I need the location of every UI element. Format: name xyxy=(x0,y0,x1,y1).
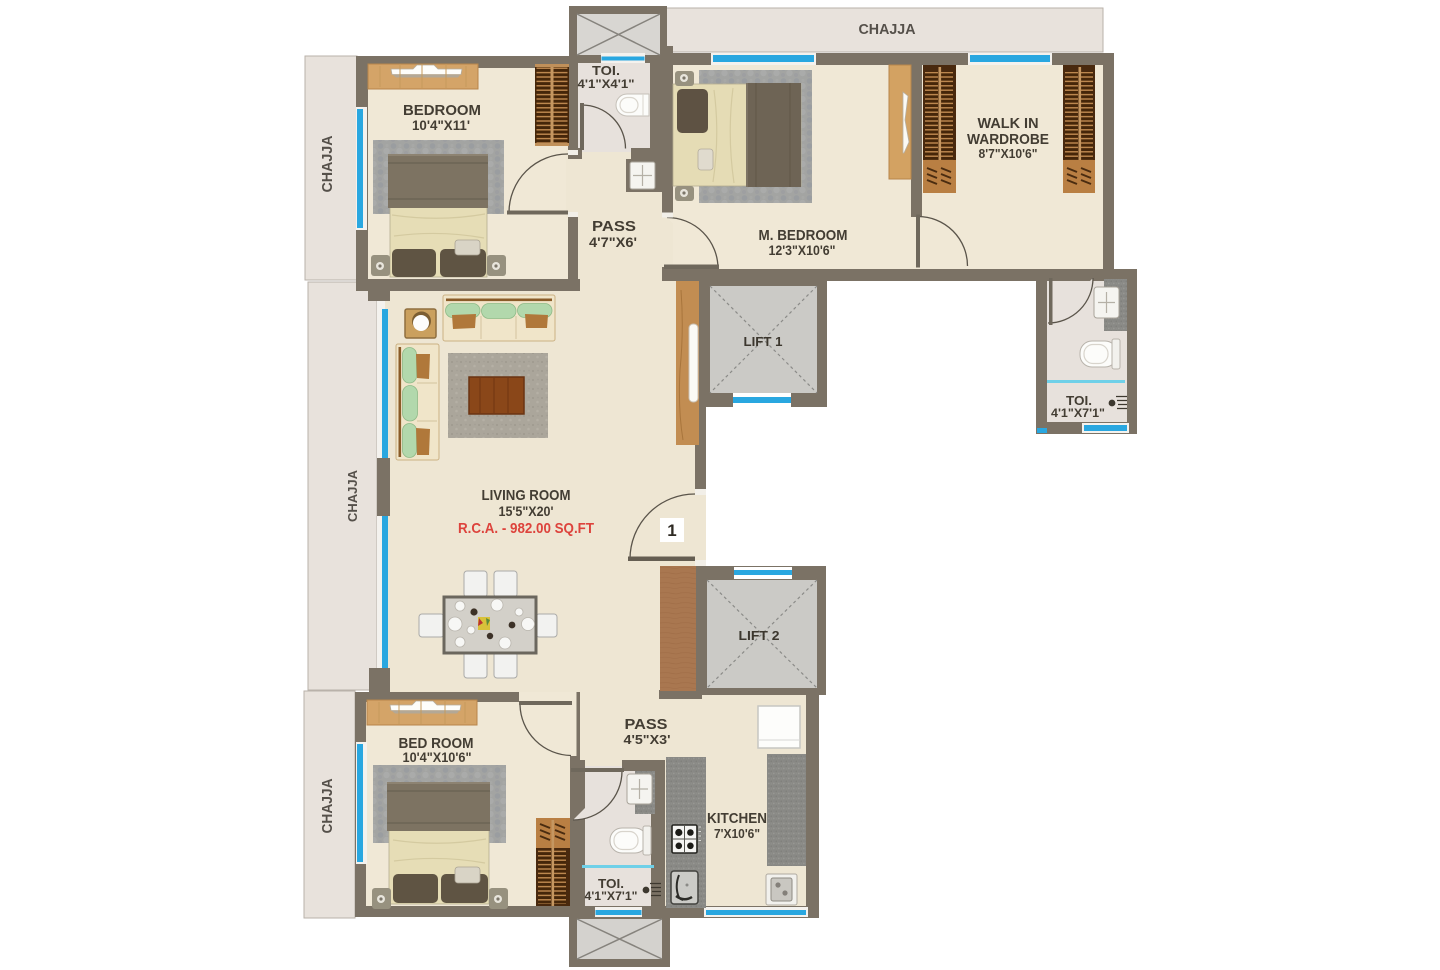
svg-text:CHAJJA: CHAJJA xyxy=(859,22,917,38)
svg-text:LIFT 2: LIFT 2 xyxy=(739,628,780,643)
svg-text:TOI.: TOI. xyxy=(592,64,620,78)
svg-text:1: 1 xyxy=(667,521,676,540)
svg-text:CHAJJA: CHAJJA xyxy=(320,778,336,833)
svg-text:10'4"X10'6": 10'4"X10'6" xyxy=(403,750,472,765)
svg-text:7'X10'6": 7'X10'6" xyxy=(714,826,760,841)
svg-text:10'4"X11': 10'4"X11' xyxy=(412,118,470,133)
svg-text:PASS: PASS xyxy=(625,717,668,733)
svg-text:TOI.: TOI. xyxy=(598,877,624,891)
svg-text:M. BEDROOM: M. BEDROOM xyxy=(759,227,848,244)
svg-text:BEDROOM: BEDROOM xyxy=(403,102,481,119)
svg-text:4'7"X6': 4'7"X6' xyxy=(589,235,637,250)
svg-text:4'1"X4'1": 4'1"X4'1" xyxy=(578,79,635,91)
svg-text:R.C.A. - 982.00 SQ.FT: R.C.A. - 982.00 SQ.FT xyxy=(458,520,594,537)
svg-text:4'1"X7'1": 4'1"X7'1" xyxy=(1051,408,1105,420)
svg-text:CHAJJA: CHAJJA xyxy=(320,135,336,193)
svg-text:PASS: PASS xyxy=(592,219,636,235)
svg-text:8'7"X10'6": 8'7"X10'6" xyxy=(979,146,1038,161)
svg-text:TOI.: TOI. xyxy=(1066,394,1092,408)
svg-text:CHAJJA: CHAJJA xyxy=(345,469,360,522)
svg-text:WALK IN: WALK IN xyxy=(978,115,1039,132)
svg-text:4'5"X3': 4'5"X3' xyxy=(624,732,671,747)
svg-text:4'1"X7'1": 4'1"X7'1" xyxy=(585,891,638,903)
svg-text:12'3"X10'6": 12'3"X10'6" xyxy=(769,243,836,258)
svg-text:15'5"X20': 15'5"X20' xyxy=(499,503,554,519)
svg-text:LIFT 1: LIFT 1 xyxy=(744,334,783,349)
svg-text:LIVING ROOM: LIVING ROOM xyxy=(482,487,571,504)
svg-text:KITCHEN: KITCHEN xyxy=(707,811,767,827)
